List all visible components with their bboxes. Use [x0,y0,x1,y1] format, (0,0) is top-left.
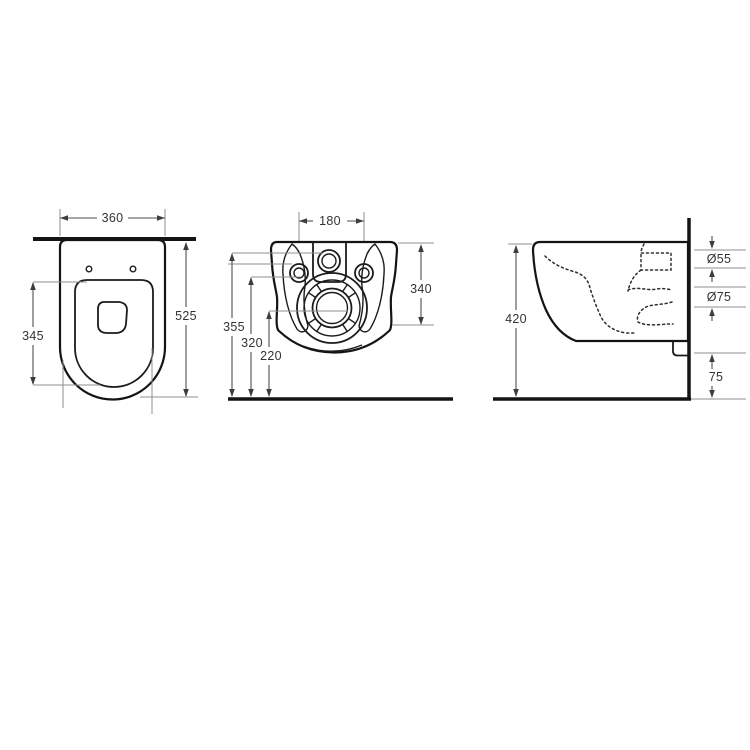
dim-inlet-diameter: Ø55 [694,236,746,282]
dim-220-label: 220 [260,349,282,363]
dim-floor-gap: 75 [694,353,746,398]
dim-55-label: Ø55 [707,252,732,266]
dim-75dia-label: Ø75 [707,290,732,304]
dim-outlet-diameter: Ø75 [694,287,746,321]
dim-345-label: 345 [22,329,44,343]
arrow-left [60,215,68,221]
dim-side-height: 340 [392,243,434,325]
arrow-right [157,215,165,221]
back-view: 180 [223,212,453,399]
dim-355-label: 355 [223,320,245,334]
top-view: 360 525 345 [22,209,198,414]
dim-360-label: 360 [102,211,124,225]
dim-320-label: 320 [241,336,263,350]
dim-420-label: 420 [505,312,527,326]
dim-height: 420 [505,244,532,397]
dim-width: 360 [60,209,165,236]
dim-340-label: 340 [410,282,432,296]
technical-drawing: 360 525 345 [0,0,750,750]
drawing-canvas: 360 525 345 [0,0,750,750]
side-body-outline [533,242,688,341]
dim-180-label: 180 [319,214,341,228]
dim-75-label: 75 [709,370,724,384]
side-view: 420 Ø55 Ø75 75 [493,218,746,400]
outlet-notch [673,342,689,356]
dim-525-label: 525 [175,309,197,323]
